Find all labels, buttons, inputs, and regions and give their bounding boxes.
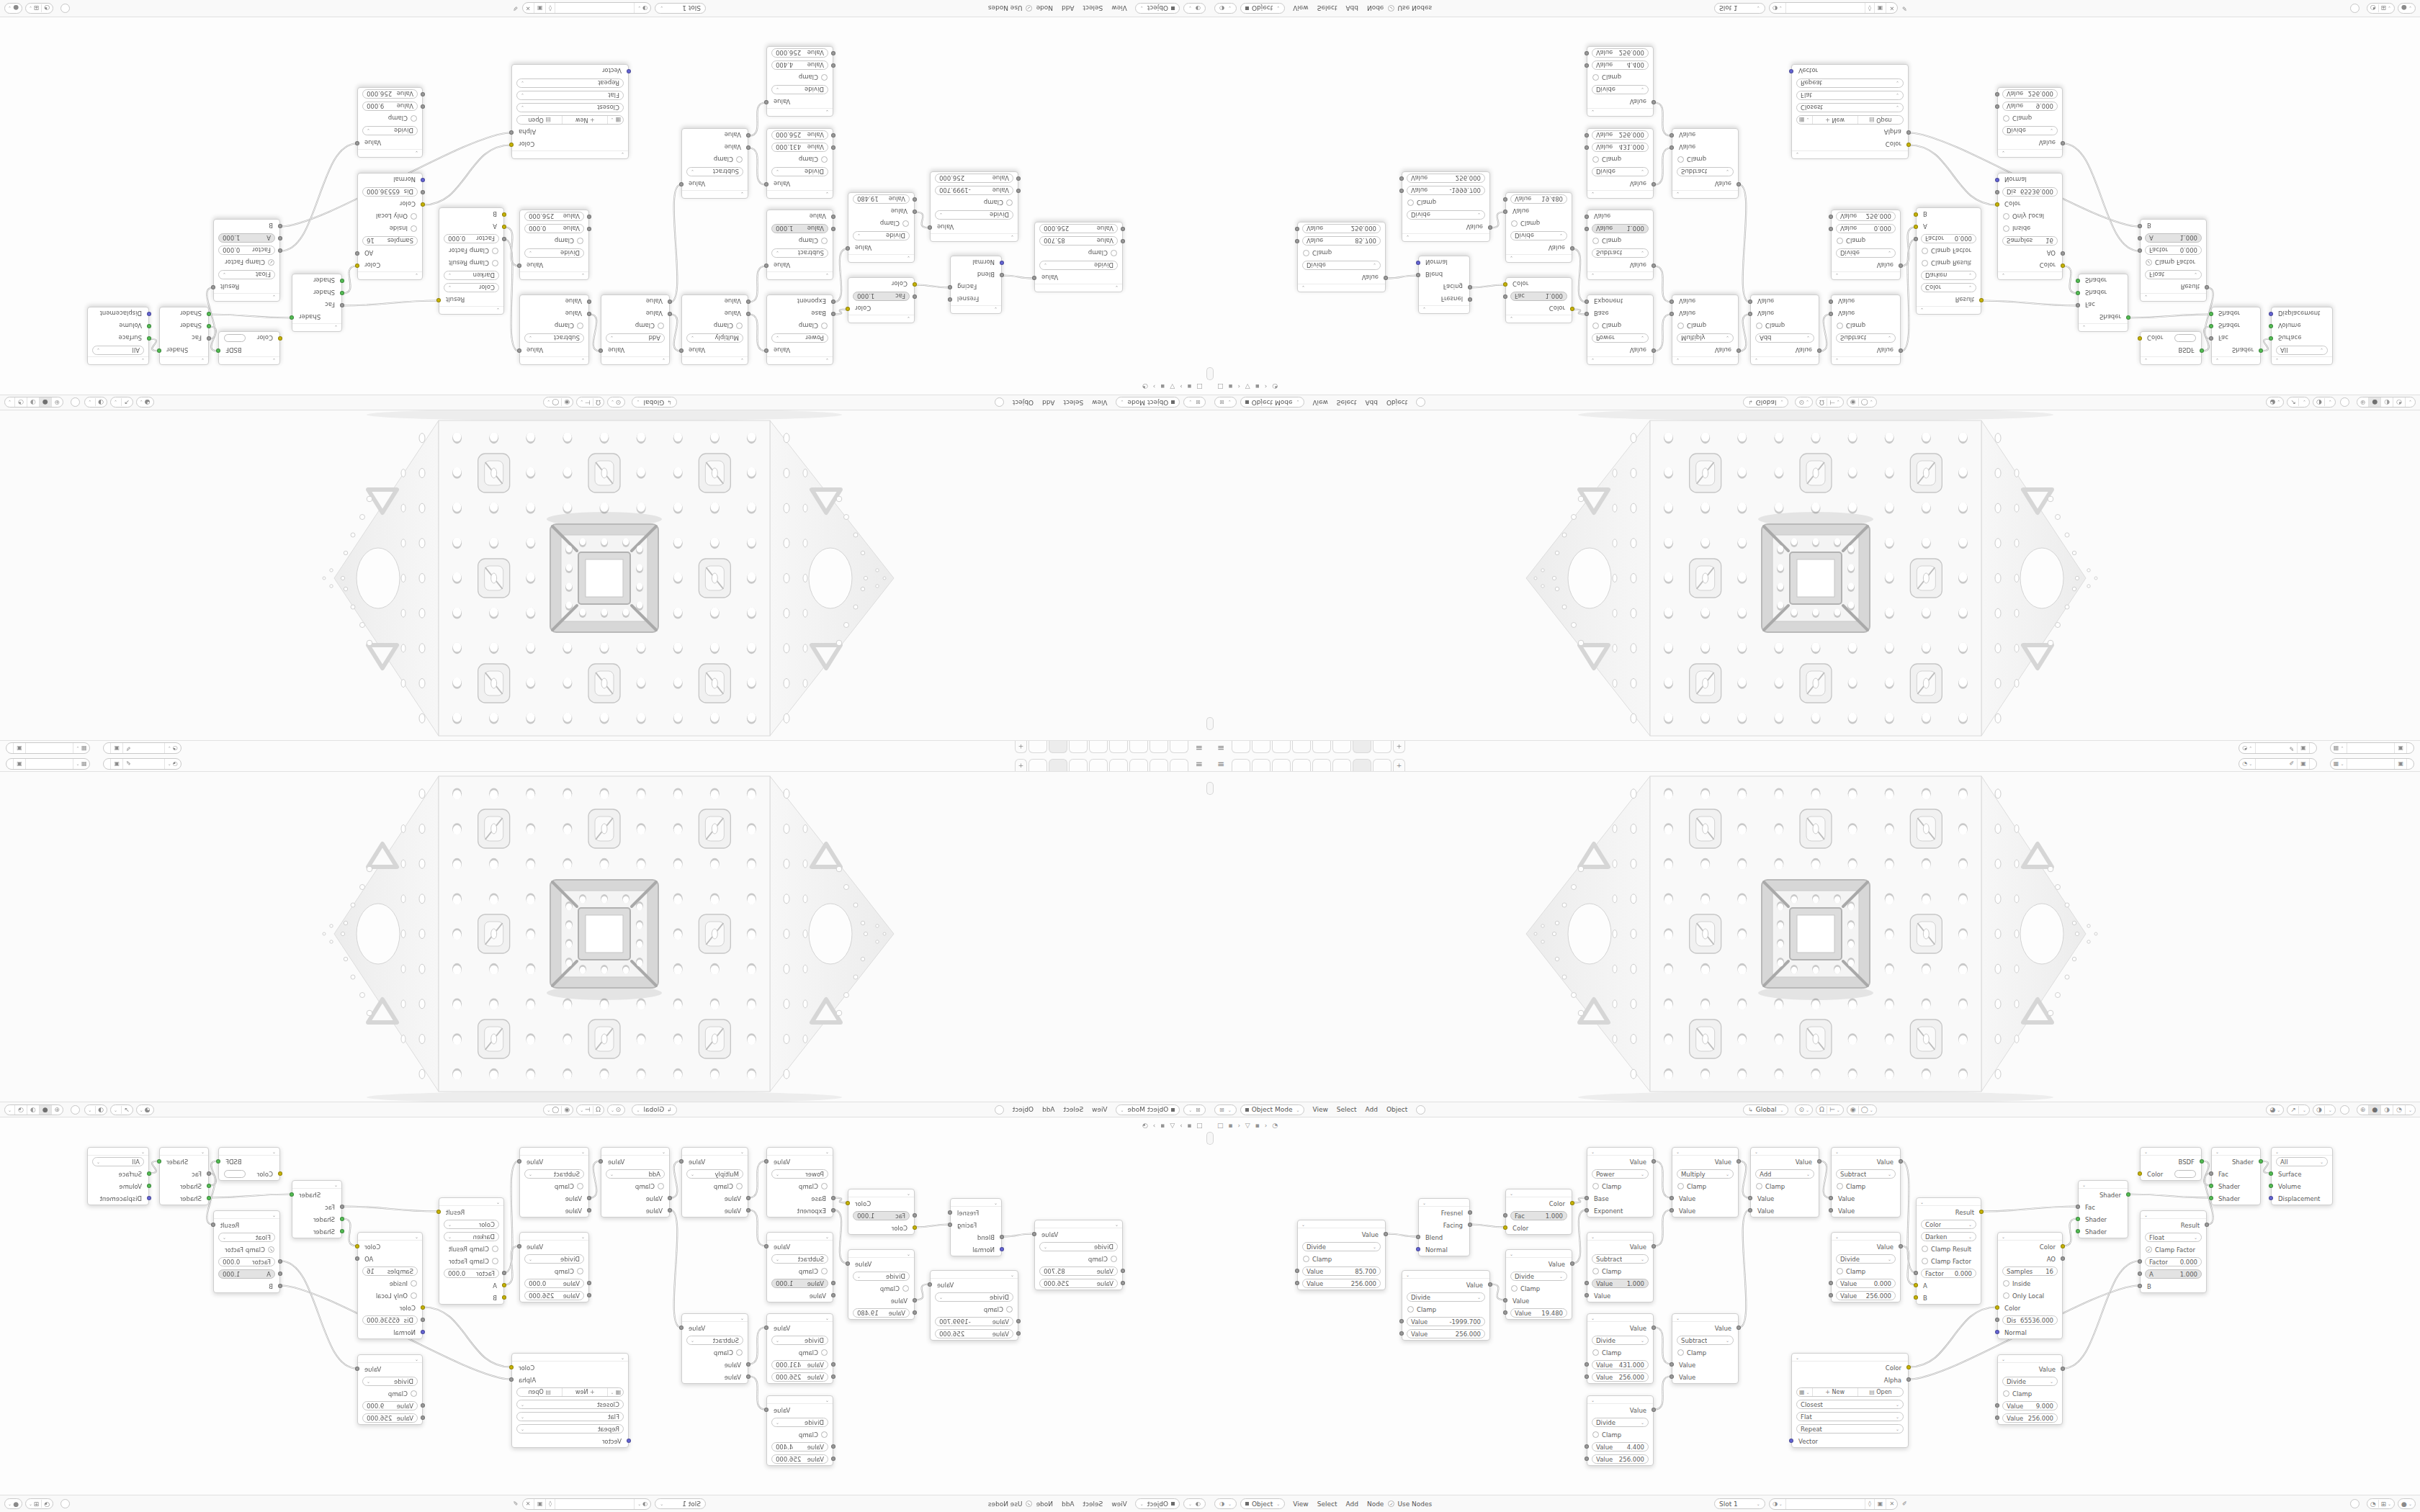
- value-field[interactable]: Value431.000: [1592, 143, 1649, 152]
- collapse-icon[interactable]: ⌄: [141, 1148, 145, 1156]
- workspace-tab[interactable]: [1149, 741, 1168, 753]
- collapse-icon[interactable]: ⌄: [1920, 306, 1924, 314]
- node-layer-weight[interactable]: ⌄FresnelFacingBlendNormal: [950, 1198, 1002, 1256]
- dropdown[interactable]: Repeat⌄: [516, 78, 624, 88]
- input-socket[interactable]: [147, 1171, 151, 1176]
- input-socket[interactable]: [1995, 1403, 1999, 1408]
- value-field[interactable]: Value0.000: [1836, 224, 1896, 233]
- dropdown[interactable]: Divide⌄: [1039, 261, 1118, 270]
- collapse-icon[interactable]: ⌄: [496, 306, 500, 314]
- output-socket[interactable]: [355, 1256, 359, 1261]
- image-browse-button[interactable]: ▦⌄: [608, 116, 623, 124]
- output-socket[interactable]: [1652, 1159, 1656, 1164]
- input-socket[interactable]: [1016, 1331, 1021, 1336]
- add-workspace-button[interactable]: +: [1015, 759, 1027, 771]
- checkbox[interactable]: [821, 1268, 828, 1274]
- workspace-tab[interactable]: [1332, 759, 1351, 771]
- checkbox[interactable]: [577, 238, 583, 244]
- copy-icon[interactable]: ▣: [2394, 744, 2406, 754]
- output-socket[interactable]: [1652, 182, 1656, 186]
- material-selector[interactable]: ◑⌄ ◊ ▣ ✕: [1769, 1498, 1898, 1510]
- input-socket[interactable]: [1585, 300, 1589, 304]
- value-field[interactable]: Samples16: [2002, 236, 2058, 246]
- shading-dropdown[interactable]: ⌄: [2405, 1104, 2415, 1115]
- input-socket[interactable]: [340, 1217, 344, 1221]
- node-math-divide[interactable]: ⌄ValueDivide⌄ClampValue-1999.700Value256…: [930, 1270, 1018, 1341]
- editor-type-button[interactable]: ◑ ⌄: [1183, 1498, 1206, 1509]
- dropdown[interactable]: Divide⌄: [1407, 1292, 1485, 1302]
- input-socket[interactable]: [831, 215, 835, 219]
- checkbox[interactable]: [411, 115, 417, 122]
- collapse-icon[interactable]: ⌄: [1835, 356, 1839, 364]
- checkbox[interactable]: [1837, 323, 1843, 329]
- pivot-point-dropdown[interactable]: ⊙ ⌄: [1795, 1104, 1813, 1115]
- checkbox[interactable]: [1006, 1306, 1013, 1313]
- collapse-icon[interactable]: ⌄: [1676, 190, 1680, 198]
- output-socket[interactable]: [2061, 141, 2065, 145]
- scene-unlink-button[interactable]: [104, 759, 111, 769]
- dropdown[interactable]: Multiply⌄: [1677, 1169, 1734, 1179]
- dropdown[interactable]: Darken⌄: [1921, 1232, 1976, 1241]
- open-image-button[interactable]: ▤ Open: [1857, 1388, 1903, 1396]
- output-socket[interactable]: [948, 297, 952, 302]
- menu-select[interactable]: Select: [1317, 1500, 1337, 1508]
- input-socket[interactable]: [502, 1283, 506, 1287]
- shading-dropdown[interactable]: ⌄: [5, 397, 15, 408]
- input-socket[interactable]: [421, 1403, 425, 1408]
- output-socket[interactable]: [928, 1282, 932, 1287]
- checkbox[interactable]: [1592, 238, 1599, 244]
- dropdown[interactable]: Divide⌄: [935, 210, 1013, 220]
- input-socket[interactable]: [2269, 336, 2273, 341]
- shader-node-editor[interactable]: □ ▪ › ▽ ▪ › ◔ ⌄ValueDivide⌄ClampValue85.…: [0, 17, 1210, 395]
- material-selector[interactable]: ◑⌄ ◊ ▣ ✕: [522, 3, 651, 14]
- menu-add[interactable]: Add: [1042, 1106, 1054, 1113]
- workspace-tab[interactable]: [1089, 741, 1108, 753]
- collapse-icon[interactable]: ⌄: [1010, 1271, 1014, 1279]
- input-socket[interactable]: [1748, 300, 1752, 304]
- value-field[interactable]: Factor0.000: [218, 1257, 275, 1266]
- menu-select[interactable]: Select: [1063, 399, 1083, 406]
- checkbox[interactable]: [492, 1246, 498, 1252]
- value-field[interactable]: Value1.000: [1592, 224, 1649, 233]
- value-field[interactable]: Value256.000: [524, 212, 584, 221]
- output-socket[interactable]: [764, 1326, 768, 1330]
- editor-type-button[interactable]: ◑ ⌄: [1214, 3, 1237, 14]
- input-socket[interactable]: [340, 303, 344, 307]
- scene-name-field[interactable]: ✐: [123, 744, 165, 754]
- collapse-icon[interactable]: ⌄: [2144, 1148, 2148, 1156]
- toolbar-expand-handle[interactable]: [1210, 717, 1214, 730]
- value-field[interactable]: Value256.000: [935, 1329, 1013, 1338]
- input-socket[interactable]: [913, 1298, 917, 1302]
- dropdown[interactable]: Float⌄: [218, 270, 275, 279]
- app-menu-icon[interactable]: ≡: [1196, 742, 1203, 756]
- copy-icon[interactable]: ▣: [2297, 744, 2309, 754]
- workspace-tab[interactable]: [1149, 759, 1168, 771]
- copy-icon[interactable]: ▣: [534, 1499, 547, 1509]
- value-field[interactable]: Value0.000: [1836, 1279, 1896, 1288]
- node-math-divide[interactable]: ⌄ValueDivide⌄ClampValue4.400Value256.000: [1587, 1395, 1654, 1466]
- collapse-icon[interactable]: ⌄: [1835, 271, 1839, 279]
- input-socket[interactable]: [1585, 51, 1589, 55]
- copy-icon[interactable]: ▣: [2297, 759, 2309, 769]
- checkbox[interactable]: [736, 1349, 743, 1356]
- collapse-icon[interactable]: ⌄: [1676, 1314, 1680, 1322]
- checkbox[interactable]: [1922, 260, 1928, 266]
- value-field[interactable]: Value256.000: [1302, 1279, 1381, 1288]
- close-icon[interactable]: ✕: [1886, 1499, 1897, 1509]
- output-socket[interactable]: [1570, 1201, 1574, 1205]
- collapse-icon[interactable]: ⌄: [1115, 1220, 1119, 1228]
- output-socket[interactable]: [2205, 285, 2209, 289]
- input-socket[interactable]: [1503, 1213, 1507, 1218]
- collapse-icon[interactable]: ⌄: [415, 149, 418, 157]
- workspace-tab[interactable]: [1109, 741, 1128, 753]
- collapse-icon[interactable]: ⌄: [272, 1211, 276, 1219]
- value-field[interactable]: Value256.000: [362, 89, 418, 99]
- dropdown[interactable]: Repeat⌄: [1796, 78, 1904, 88]
- pivot-point-dropdown[interactable]: ⊙ ⌄: [607, 397, 625, 408]
- menu-select[interactable]: Select: [1083, 5, 1103, 12]
- collapse-icon[interactable]: ⌄: [581, 1148, 585, 1156]
- checkbox[interactable]: [1303, 250, 1309, 256]
- node-math-divide[interactable]: ⌄ValueDivide⌄ClampValueValue19.480: [848, 192, 915, 263]
- input-socket[interactable]: [421, 1416, 425, 1420]
- node-math-divide[interactable]: ⌄ValueDivide⌄ClampValue4.400Value256.000: [766, 1395, 833, 1466]
- input-socket[interactable]: [587, 215, 591, 219]
- node-image-texture[interactable]: ⌄ColorAlpha▦⌄+ New▤ OpenClosest⌄Flat⌄Rep…: [1791, 1353, 1909, 1448]
- value-field[interactable]: Dis65536.000: [362, 187, 418, 197]
- collapse-icon[interactable]: ⌄: [907, 254, 910, 262]
- workspace-tab[interactable]: [1069, 759, 1088, 771]
- input-socket[interactable]: [502, 212, 506, 217]
- scene-name-field[interactable]: ✐: [123, 759, 165, 769]
- input-socket[interactable]: [2138, 236, 2142, 240]
- menu-view[interactable]: View: [1111, 1500, 1126, 1508]
- workspace-tab[interactable]: [1232, 759, 1250, 771]
- value-field[interactable]: Value256.000: [2002, 89, 2058, 99]
- checkbox[interactable]: [1677, 1183, 1684, 1189]
- value-field[interactable]: Factor0.000: [218, 246, 275, 255]
- value-field[interactable]: Value-1999.700: [935, 1317, 1013, 1326]
- mode-dropdown[interactable]: Object Mode ⌄: [1240, 397, 1305, 408]
- dropdown[interactable]: Subtract⌄: [1836, 333, 1896, 343]
- value-field[interactable]: Value9.000: [362, 102, 418, 111]
- checkbox[interactable]: [411, 225, 417, 232]
- input-socket[interactable]: [1503, 1310, 1507, 1315]
- collapse-icon[interactable]: ⌄: [272, 1148, 276, 1156]
- view-layer-unlink-button[interactable]: [2406, 759, 2414, 769]
- value-field[interactable]: Value19.480: [1510, 194, 1567, 204]
- dropdown[interactable]: Add⌄: [606, 1169, 665, 1179]
- color-swatch[interactable]: [2174, 1170, 2196, 1178]
- checkbox[interactable]: [1837, 1183, 1843, 1189]
- snap-dropdown[interactable]: ◔ ⊞ ⌄: [2367, 1498, 2395, 1509]
- checkbox[interactable]: [1111, 1256, 1117, 1262]
- dropdown[interactable]: Add⌄: [1755, 333, 1814, 343]
- dropdown[interactable]: Float⌄: [2145, 1233, 2202, 1242]
- gizmos-dropdown[interactable]: ↗ ⌄: [2287, 1104, 2310, 1115]
- input-socket[interactable]: [746, 145, 750, 150]
- output-socket[interactable]: [2126, 315, 2130, 320]
- node-math-subtract[interactable]: ⌄ValueSubtract⌄ClampValue1.000Value: [1587, 210, 1654, 280]
- slot-dropdown[interactable]: Slot 1 ⌄: [655, 1498, 706, 1509]
- checkbox[interactable]: [1111, 250, 1117, 256]
- collapse-icon[interactable]: ⌄: [1591, 1148, 1595, 1156]
- output-socket[interactable]: [1736, 1159, 1741, 1164]
- node-transparent-bsdf[interactable]: ⌄BSDFColor: [2140, 1147, 2202, 1181]
- workspace-tab[interactable]: [1028, 759, 1047, 771]
- input-socket[interactable]: [1829, 1281, 1833, 1285]
- collapse-icon[interactable]: ⌄: [415, 271, 418, 279]
- dropdown[interactable]: Subtract⌄: [686, 1336, 743, 1345]
- dropdown[interactable]: Multiply⌄: [686, 1169, 743, 1179]
- input-socket[interactable]: [1121, 1281, 1125, 1285]
- value-field[interactable]: Value9.000: [362, 1401, 418, 1410]
- output-socket[interactable]: [2205, 1223, 2209, 1227]
- color-swatch[interactable]: [2174, 334, 2196, 342]
- collapse-icon[interactable]: ⌄: [581, 271, 585, 279]
- scene-selector[interactable]: ◔⌄ ✐ ▣: [2238, 758, 2317, 770]
- shader-type-dropdown[interactable]: Object ⌄: [1240, 3, 1285, 14]
- checkbox[interactable]: [658, 323, 664, 329]
- value-field[interactable]: Dis65536.000: [2002, 187, 2058, 197]
- input-socket[interactable]: [831, 1208, 835, 1212]
- input-socket[interactable]: [207, 336, 211, 341]
- collapse-icon[interactable]: ⌄: [825, 1396, 829, 1404]
- input-socket[interactable]: [1585, 227, 1589, 231]
- output-socket[interactable]: [1899, 348, 1903, 353]
- node-math-subtract[interactable]: ⌄ValueSubtract⌄ClampValueValue: [1831, 1147, 1901, 1218]
- proportional-editing-controls[interactable]: ◉ ◯ ⌄: [543, 397, 573, 408]
- collapse-icon[interactable]: ⌄: [2275, 356, 2279, 364]
- new-image-button[interactable]: + New: [1812, 1388, 1857, 1396]
- menu-node[interactable]: Node: [1367, 1500, 1384, 1508]
- output-socket[interactable]: [1899, 1244, 1903, 1248]
- add-workspace-button[interactable]: +: [1393, 741, 1405, 753]
- input-socket[interactable]: [278, 1259, 282, 1264]
- input-socket[interactable]: [207, 1171, 211, 1176]
- input-socket[interactable]: [1585, 312, 1589, 316]
- value-field[interactable]: Value19.480: [1510, 1308, 1567, 1318]
- dropdown[interactable]: Divide⌄: [771, 85, 828, 94]
- input-socket[interactable]: [2076, 1205, 2080, 1209]
- input-socket[interactable]: [278, 1284, 282, 1288]
- collapse-icon[interactable]: ⌄: [1676, 356, 1680, 364]
- output-socket[interactable]: [2126, 1192, 2130, 1197]
- workspace-tab[interactable]: [1292, 741, 1311, 753]
- workspace-tab[interactable]: [1292, 759, 1311, 771]
- checkbox[interactable]: [1756, 323, 1762, 329]
- input-socket[interactable]: [502, 225, 506, 229]
- value-field[interactable]: Value256.000: [771, 1454, 828, 1464]
- input-socket[interactable]: [1585, 1457, 1589, 1461]
- dropdown[interactable]: Closest⌄: [516, 103, 624, 112]
- menu-add[interactable]: Add: [1062, 1500, 1074, 1508]
- slot-dropdown[interactable]: Slot 1 ⌄: [1714, 3, 1765, 14]
- copy-icon[interactable]: ▣: [2394, 759, 2406, 769]
- input-socket[interactable]: [1829, 312, 1833, 316]
- collapse-icon[interactable]: ⌄: [1754, 1148, 1758, 1156]
- input-socket[interactable]: [831, 1281, 835, 1285]
- output-socket[interactable]: [2259, 348, 2263, 353]
- collapse-icon[interactable]: ⌄: [662, 1148, 665, 1156]
- output-socket[interactable]: [2061, 1244, 2065, 1248]
- value-field[interactable]: Value85.700: [1039, 1266, 1118, 1276]
- input-socket[interactable]: [278, 236, 282, 240]
- output-socket[interactable]: [517, 1244, 521, 1248]
- wireframe-shading-button[interactable]: ⊕: [2357, 1104, 2369, 1115]
- view-layer-name-field[interactable]: [26, 759, 73, 769]
- input-socket[interactable]: [340, 291, 344, 295]
- material-name-field[interactable]: [555, 4, 635, 14]
- output-socket[interactable]: [2200, 1159, 2204, 1164]
- app-menu-icon[interactable]: ≡: [1217, 757, 1224, 771]
- output-socket[interactable]: [1032, 276, 1036, 280]
- node-math-divide[interactable]: ⌄ValueDivide⌄ClampValue0.000Value256.000: [1831, 210, 1901, 280]
- output-socket[interactable]: [1906, 130, 1911, 135]
- dropdown[interactable]: All⌄: [2276, 1157, 2328, 1166]
- value-field[interactable]: A1.000: [2145, 1269, 2202, 1279]
- material-name-field[interactable]: [1785, 4, 1865, 14]
- collapse-icon[interactable]: ⌄: [2082, 1181, 2086, 1189]
- value-field[interactable]: Value1.000: [771, 1279, 828, 1288]
- overlays-dropdown[interactable]: ◑ ⌄: [84, 397, 107, 408]
- checkbox[interactable]: ✓: [268, 259, 274, 266]
- input-socket[interactable]: [278, 336, 282, 341]
- dropdown[interactable]: Divide⌄: [1592, 1336, 1649, 1345]
- dropdown[interactable]: Divide⌄: [524, 248, 584, 258]
- output-socket[interactable]: [2259, 1159, 2263, 1164]
- output-socket[interactable]: [1468, 1223, 1472, 1227]
- value-field[interactable]: Value256.000: [2002, 1413, 2058, 1423]
- collapse-icon[interactable]: ⌄: [2002, 271, 2005, 279]
- dropdown[interactable]: Divide⌄: [1510, 1272, 1567, 1281]
- checkbox[interactable]: [1922, 248, 1928, 254]
- value-field[interactable]: Value4.400: [771, 1442, 828, 1452]
- menu-object[interactable]: Object: [1386, 399, 1407, 406]
- input-socket[interactable]: [746, 1362, 750, 1367]
- node-mix-float[interactable]: ⌄ResultFloat⌄✓Clamp FactorFactor0.000A1.…: [213, 219, 280, 302]
- close-icon[interactable]: ✕: [523, 4, 534, 14]
- value-field[interactable]: Value256.000: [1592, 48, 1649, 58]
- checkbox[interactable]: [1303, 1256, 1309, 1262]
- checkbox[interactable]: ✓: [2146, 1246, 2152, 1253]
- checkbox[interactable]: [411, 213, 417, 220]
- checkbox[interactable]: [1592, 156, 1599, 163]
- collapse-icon[interactable]: ⌄: [2144, 356, 2148, 364]
- node-math-divide[interactable]: ⌄ValueDivide⌄ClampValueValue19.480: [848, 1249, 915, 1320]
- menu-select[interactable]: Select: [1337, 1106, 1357, 1113]
- input-socket[interactable]: [587, 300, 591, 304]
- input-socket[interactable]: [1789, 69, 1793, 73]
- snap-controls[interactable]: Ω ⊢ ⌄: [576, 397, 604, 408]
- output-socket[interactable]: [1570, 307, 1574, 311]
- value-field[interactable]: Value4.400: [771, 60, 828, 70]
- input-socket[interactable]: [1585, 1362, 1589, 1367]
- node-layer-weight[interactable]: ⌄FresnelFacingBlendNormal: [950, 256, 1002, 314]
- node-math-power[interactable]: ⌄ValuePower⌄ClampBaseExponent: [766, 294, 833, 365]
- node-math-subtract[interactable]: ⌄ValueSubtract⌄ClampValue1.000Value: [1587, 1232, 1654, 1302]
- dropdown[interactable]: Divide⌄: [2002, 126, 2058, 135]
- dropdown[interactable]: Flat⌄: [516, 91, 624, 100]
- collapse-icon[interactable]: ⌄: [662, 356, 665, 364]
- collapse-icon[interactable]: ⌄: [201, 356, 205, 364]
- node-math-divide[interactable]: ⌄ValueDivide⌄ClampValue431.000Value256.0…: [1587, 1313, 1654, 1384]
- node-invert-color[interactable]: ⌄ColorFac1.000Color: [1505, 277, 1572, 323]
- input-socket[interactable]: [1000, 261, 1004, 265]
- collapse-icon[interactable]: ⌄: [1422, 305, 1426, 313]
- input-socket[interactable]: [587, 227, 591, 231]
- output-socket[interactable]: [1817, 1159, 1821, 1164]
- use-nodes-checkbox[interactable]: ✓: [1388, 1500, 1394, 1507]
- material-shading-button[interactable]: ◑: [27, 1104, 40, 1115]
- collapse-icon[interactable]: ⌄: [1796, 150, 1799, 158]
- scene-selector[interactable]: ◔⌄ ✐ ▣: [2238, 743, 2317, 755]
- collapse-icon[interactable]: ⌄: [994, 305, 998, 313]
- input-socket[interactable]: [1670, 145, 1674, 150]
- workspace-tab[interactable]: [1049, 759, 1067, 771]
- node-mix-shader[interactable]: ⌄ShaderFacShaderShader: [292, 1180, 342, 1238]
- output-socket[interactable]: [2061, 251, 2065, 256]
- input-socket[interactable]: [2076, 1229, 2080, 1233]
- checkbox[interactable]: [577, 1268, 583, 1274]
- node-math-divide[interactable]: ⌄ValueDivide⌄ClampValue0.000Value256.000: [1831, 1232, 1901, 1302]
- input-socket[interactable]: [2209, 1171, 2213, 1176]
- input-socket[interactable]: [2209, 1196, 2213, 1200]
- checkbox[interactable]: [658, 1183, 664, 1189]
- input-socket[interactable]: [1416, 273, 1420, 277]
- input-socket[interactable]: [1416, 1247, 1420, 1251]
- 3d-viewport[interactable]: [0, 772, 1210, 1102]
- collapse-icon[interactable]: ⌄: [1754, 356, 1758, 364]
- checkbox[interactable]: [492, 248, 498, 254]
- node-invert-color[interactable]: ⌄ColorFac1.000Color: [848, 1189, 915, 1235]
- overlay-dropdown[interactable]: ● ⌄: [2398, 3, 2416, 14]
- input-socket[interactable]: [1914, 212, 1918, 217]
- input-socket[interactable]: [1829, 1196, 1833, 1200]
- input-socket[interactable]: [831, 1196, 835, 1200]
- menu-select[interactable]: Select: [1083, 1500, 1103, 1508]
- workspace-tab[interactable]: [1252, 759, 1270, 771]
- editor-type-button[interactable]: ⊞ ⌄: [1183, 1104, 1206, 1115]
- output-socket[interactable]: [2061, 1367, 2065, 1371]
- workspace-tab[interactable]: [1353, 741, 1371, 753]
- value-field[interactable]: Value256.000: [362, 1413, 418, 1423]
- input-socket[interactable]: [1670, 1374, 1674, 1379]
- input-socket[interactable]: [1399, 1319, 1404, 1323]
- node-ambient-occlusion[interactable]: ⌄ColorAOSamples16InsideOnly LocalColorDi…: [357, 1232, 423, 1339]
- dropdown[interactable]: Divide⌄: [1039, 1242, 1118, 1251]
- output-socket[interactable]: [764, 100, 768, 104]
- input-socket[interactable]: [1914, 237, 1918, 241]
- checkbox[interactable]: [1407, 199, 1414, 206]
- output-socket[interactable]: [436, 298, 441, 302]
- checkbox[interactable]: [1592, 1268, 1599, 1274]
- rendered-shading-button[interactable]: ◔: [2393, 1104, 2405, 1115]
- workspace-tab[interactable]: [1332, 741, 1351, 753]
- input-socket[interactable]: [1585, 215, 1589, 219]
- shield-icon[interactable]: ◊: [1865, 1499, 1874, 1509]
- checkbox[interactable]: [1677, 323, 1684, 329]
- output-socket[interactable]: [1979, 298, 1984, 302]
- shader-node-editor[interactable]: □ ▪ › ▽ ▪ › ◔ ⌄ValueDivide⌄ClampValue85.…: [1210, 17, 2420, 395]
- workspace-tab[interactable]: [1353, 759, 1371, 771]
- output-socket[interactable]: [1488, 225, 1492, 230]
- xray-toggle[interactable]: [2340, 398, 2349, 408]
- dropdown[interactable]: Color⌄: [444, 1220, 499, 1229]
